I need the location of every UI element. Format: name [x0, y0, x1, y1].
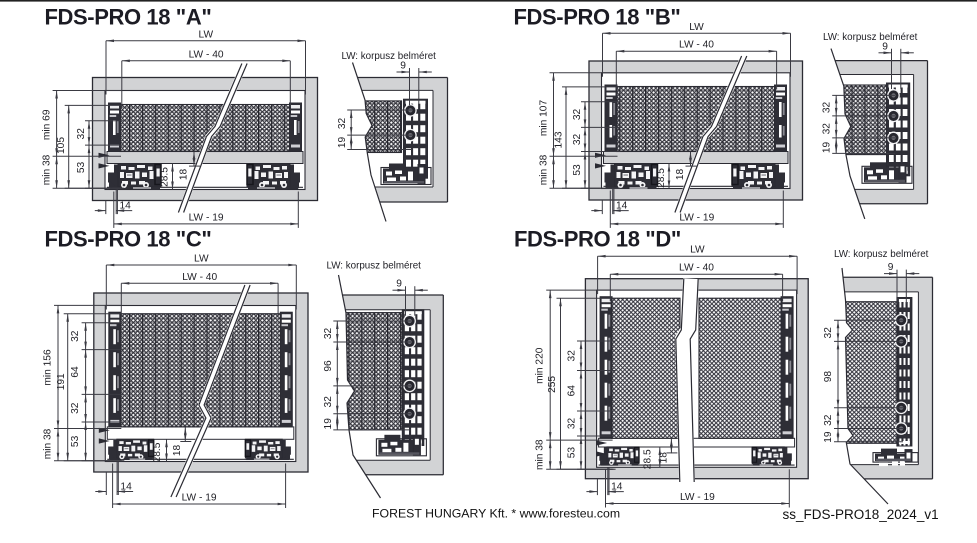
svg-text:LW - 40: LW - 40 — [182, 272, 217, 283]
svg-text:19: 19 — [337, 137, 348, 149]
svg-text:LW: korpusz belméret: LW: korpusz belméret — [342, 51, 437, 62]
svg-text:LW: korpusz belméret: LW: korpusz belméret — [823, 32, 918, 43]
svg-text:19: 19 — [822, 142, 833, 154]
svg-text:53: 53 — [567, 447, 578, 459]
svg-text:32: 32 — [337, 118, 348, 130]
svg-text:9: 9 — [888, 262, 894, 273]
svg-text:LW: korpusz belméret: LW: korpusz belméret — [327, 261, 422, 272]
svg-text:LW - 19: LW - 19 — [189, 212, 224, 223]
svg-text:FDS-PRO 18 "C": FDS-PRO 18 "C" — [45, 226, 212, 251]
svg-text:FDS-PRO 18 "A": FDS-PRO 18 "A" — [45, 5, 212, 30]
svg-text:19: 19 — [823, 431, 834, 443]
svg-text:LW - 40: LW - 40 — [679, 263, 714, 274]
svg-text:105: 105 — [56, 137, 67, 154]
svg-text:min 69: min 69 — [42, 109, 53, 140]
svg-text:min 38: min 38 — [535, 439, 546, 470]
svg-text:32: 32 — [70, 402, 81, 414]
svg-text:LW: LW — [199, 29, 214, 40]
svg-text:18: 18 — [675, 169, 686, 181]
svg-text:32: 32 — [823, 327, 834, 339]
svg-text:min 107: min 107 — [538, 100, 549, 137]
svg-text:96: 96 — [323, 360, 334, 372]
svg-text:191: 191 — [56, 373, 67, 390]
svg-text:9: 9 — [400, 61, 406, 72]
svg-text:min 38: min 38 — [42, 428, 53, 459]
svg-text:14: 14 — [616, 201, 628, 212]
svg-text:32: 32 — [323, 328, 334, 340]
svg-text:53: 53 — [76, 162, 87, 174]
svg-text:LW - 19: LW - 19 — [680, 492, 715, 503]
svg-text:min 156: min 156 — [42, 349, 53, 386]
svg-text:LW - 19: LW - 19 — [679, 212, 714, 223]
svg-text:28.5: 28.5 — [643, 449, 654, 469]
svg-text:32: 32 — [567, 418, 578, 430]
svg-text:LW: korpusz belméret: LW: korpusz belméret — [834, 249, 929, 260]
svg-text:14: 14 — [611, 482, 623, 493]
svg-text:32: 32 — [822, 123, 833, 135]
svg-text:14: 14 — [120, 201, 132, 212]
svg-text:32: 32 — [823, 414, 834, 426]
svg-text:14: 14 — [120, 482, 132, 493]
svg-text:32: 32 — [572, 109, 583, 121]
svg-text:LW: LW — [194, 254, 209, 265]
svg-text:64: 64 — [70, 366, 81, 378]
svg-text:LW: LW — [689, 22, 704, 33]
svg-text:18: 18 — [179, 169, 190, 181]
svg-text:28.5: 28.5 — [152, 442, 163, 462]
svg-text:28.5: 28.5 — [656, 168, 667, 188]
svg-text:LW - 40: LW - 40 — [679, 40, 714, 51]
svg-text:ss_FDS-PRO18_2024_v1: ss_FDS-PRO18_2024_v1 — [783, 507, 939, 522]
svg-text:9: 9 — [396, 279, 402, 290]
svg-text:64: 64 — [567, 385, 578, 397]
svg-text:LW - 40: LW - 40 — [189, 49, 224, 60]
svg-text:min 38: min 38 — [42, 154, 53, 185]
svg-text:FDS-PRO 18 "D": FDS-PRO 18 "D" — [514, 226, 681, 251]
svg-text:FDS-PRO 18 "B": FDS-PRO 18 "B" — [514, 5, 681, 30]
svg-text:FOREST HUNGARY Kft. * www.for: FOREST HUNGARY Kft. * www.foresteu.com — [372, 507, 620, 521]
svg-text:32: 32 — [323, 396, 334, 408]
svg-text:53: 53 — [70, 435, 81, 447]
svg-text:min 220: min 220 — [535, 347, 546, 384]
svg-text:32: 32 — [567, 350, 578, 362]
svg-text:18: 18 — [172, 445, 183, 457]
svg-text:143: 143 — [553, 131, 564, 148]
svg-text:LW: LW — [690, 245, 705, 256]
svg-text:19: 19 — [323, 418, 334, 430]
svg-text:LW - 19: LW - 19 — [182, 493, 217, 504]
svg-text:min 38: min 38 — [538, 154, 549, 185]
svg-text:98: 98 — [823, 371, 834, 383]
svg-text:32: 32 — [76, 128, 87, 140]
svg-text:9: 9 — [882, 41, 888, 52]
svg-text:32: 32 — [822, 102, 833, 114]
svg-text:28.5: 28.5 — [160, 167, 171, 187]
svg-text:255: 255 — [547, 376, 558, 393]
svg-text:32: 32 — [572, 134, 583, 146]
svg-text:32: 32 — [70, 330, 81, 342]
svg-text:53: 53 — [572, 164, 583, 176]
